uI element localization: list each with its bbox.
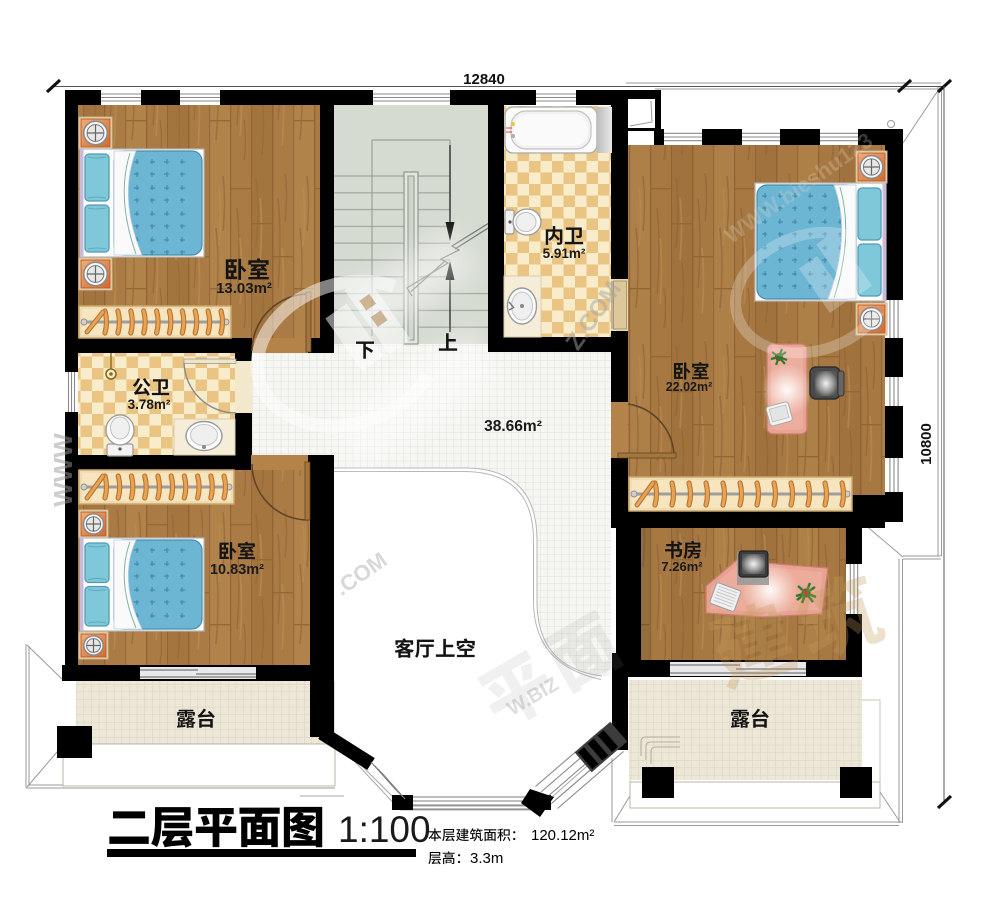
svg-text:WWW: WWW xyxy=(48,433,78,507)
svg-text:13.03m²: 13.03m² xyxy=(216,280,272,297)
svg-text:3.3m: 3.3m xyxy=(470,850,503,867)
svg-text:10.83m²: 10.83m² xyxy=(210,562,264,578)
svg-text:10800: 10800 xyxy=(918,423,935,465)
svg-text:38.66m²: 38.66m² xyxy=(484,418,542,435)
svg-text:5.91m²: 5.91m² xyxy=(543,246,586,261)
svg-text:1:100: 1:100 xyxy=(338,809,431,850)
svg-text:3.78m²: 3.78m² xyxy=(128,397,171,412)
svg-text:7.26m²: 7.26m² xyxy=(661,559,703,574)
svg-text:22.02m²: 22.02m² xyxy=(666,380,713,394)
svg-text:12840: 12840 xyxy=(463,71,505,88)
svg-text:120.12m²: 120.12m² xyxy=(531,827,594,844)
